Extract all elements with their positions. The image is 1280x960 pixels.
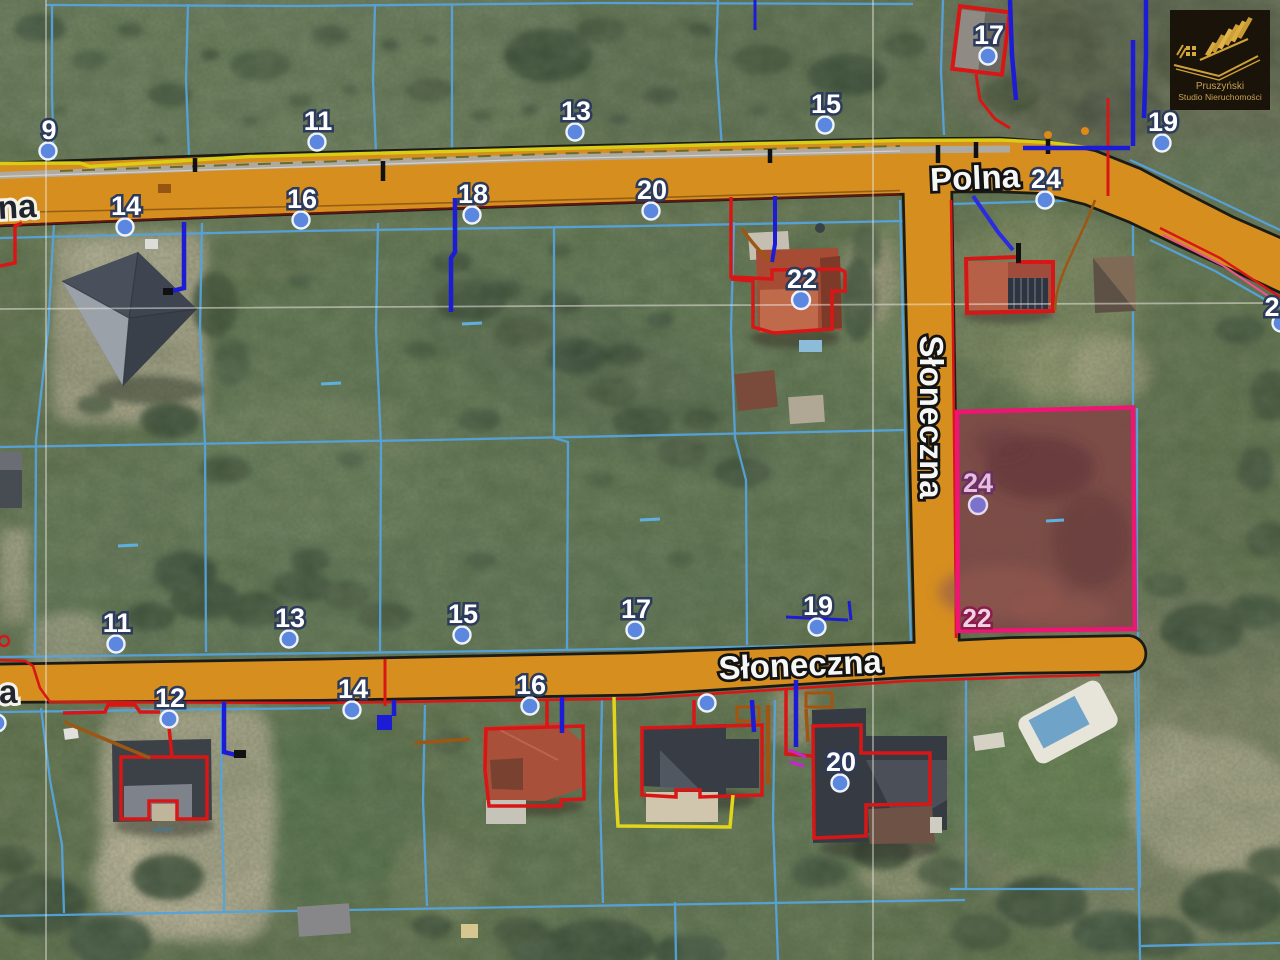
svg-text:Studio Nieruchomości: Studio Nieruchomości xyxy=(1178,92,1262,102)
svg-text:13: 13 xyxy=(561,96,591,126)
svg-text:12: 12 xyxy=(155,683,185,713)
svg-text:Słoneczna: Słoneczna xyxy=(913,335,950,499)
svg-text:2: 2 xyxy=(1264,292,1279,322)
svg-text:Polna: Polna xyxy=(929,157,1021,198)
svg-text:19: 19 xyxy=(1148,107,1178,137)
svg-text:24: 24 xyxy=(963,468,993,498)
svg-text:na: na xyxy=(0,187,38,226)
svg-text:24: 24 xyxy=(1031,164,1061,194)
svg-text:13: 13 xyxy=(275,603,305,633)
svg-text:19: 19 xyxy=(803,591,833,621)
svg-text:20: 20 xyxy=(637,175,667,205)
svg-text:11: 11 xyxy=(103,608,132,638)
svg-text:22: 22 xyxy=(963,603,992,633)
svg-text:14: 14 xyxy=(111,191,141,221)
svg-text:Pruszyński: Pruszyński xyxy=(1196,81,1244,92)
svg-text:a: a xyxy=(0,673,18,711)
svg-text:Słoneczna: Słoneczna xyxy=(718,642,883,686)
svg-text:20: 20 xyxy=(826,747,856,777)
svg-text:15: 15 xyxy=(811,89,841,119)
svg-text:17: 17 xyxy=(621,594,651,624)
svg-text:16: 16 xyxy=(516,670,546,700)
svg-text:15: 15 xyxy=(448,599,478,629)
svg-text:18: 18 xyxy=(458,179,488,209)
svg-text:17: 17 xyxy=(974,20,1004,50)
svg-text:9: 9 xyxy=(41,115,56,145)
svg-text:16: 16 xyxy=(287,184,317,214)
svg-text:22: 22 xyxy=(787,264,817,294)
svg-text:14: 14 xyxy=(338,674,368,704)
svg-text:11: 11 xyxy=(304,106,333,136)
